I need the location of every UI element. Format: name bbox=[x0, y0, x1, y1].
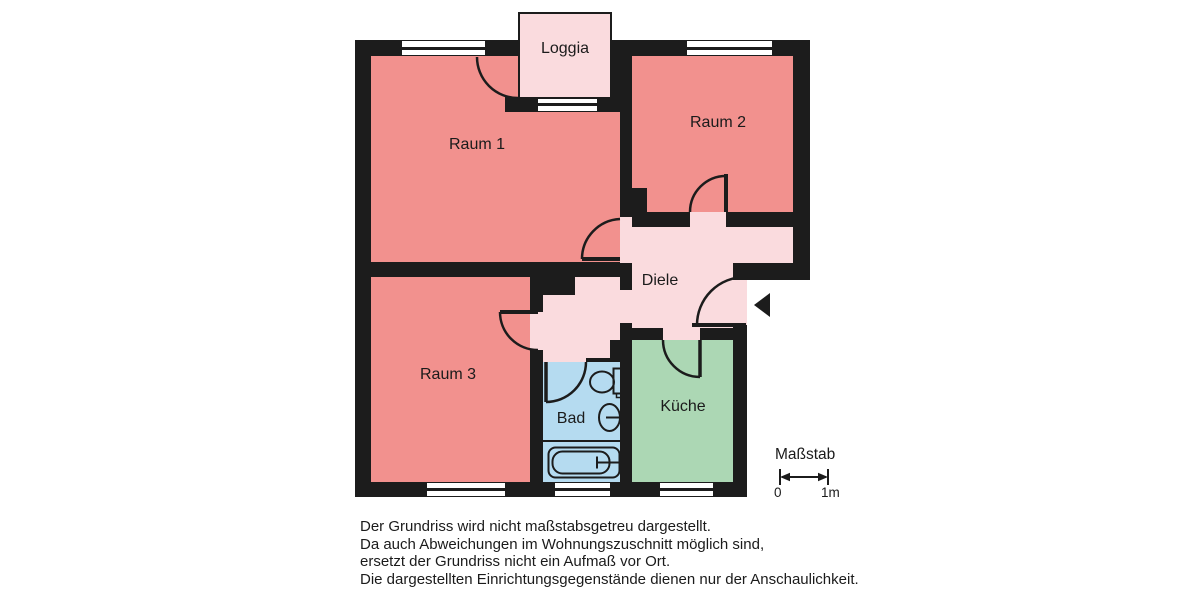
disclaimer-line: Der Grundriss wird nicht maßstabsgetreu … bbox=[360, 518, 859, 536]
wall-chimney-notch bbox=[540, 277, 575, 295]
window-symbol bbox=[427, 483, 505, 496]
window-symbol bbox=[555, 483, 610, 496]
window-symbol bbox=[660, 483, 713, 496]
room-label-diele: Diele bbox=[642, 272, 678, 290]
wall-bad-step bbox=[610, 340, 625, 358]
entrance-arrow-icon bbox=[754, 293, 770, 317]
door-gap-raum3 bbox=[530, 312, 543, 350]
diele-passage bbox=[620, 290, 632, 323]
wall-junction-block bbox=[620, 188, 647, 214]
floorplan-canvas: Loggia Raum 1 Raum 2 Raum 3 Diele Bad Kü… bbox=[0, 0, 1200, 600]
disclaimer-line: ersetzt der Grundriss nicht ein Aufmaß v… bbox=[360, 553, 859, 571]
scale-arrowhead-left bbox=[780, 473, 790, 482]
disclaimer-line: Da auch Abweichungen im Wohnungszuschnit… bbox=[360, 536, 859, 554]
scale-end-label: 1m bbox=[821, 485, 840, 500]
scale-arrow bbox=[780, 469, 828, 485]
window-symbol bbox=[402, 41, 485, 55]
door-gap-raum1 bbox=[620, 217, 632, 263]
disclaimer-text: Der Grundriss wird nicht maßstabsgetreu … bbox=[360, 518, 859, 588]
door-gap-kueche bbox=[663, 328, 700, 340]
room-label-raum1: Raum 1 bbox=[449, 136, 505, 154]
scale-title: Maßstab bbox=[775, 446, 835, 464]
room-raum2 bbox=[632, 56, 793, 212]
scale-start-label: 0 bbox=[774, 485, 782, 500]
room-label-raum3: Raum 3 bbox=[420, 366, 476, 384]
window-symbol bbox=[538, 98, 597, 111]
disclaimer-line: Die dargestellten Einrichtungsgegenständ… bbox=[360, 571, 859, 589]
room-label-loggia: Loggia bbox=[541, 40, 589, 58]
door-gap-entrance bbox=[733, 280, 747, 325]
room-label-raum2: Raum 2 bbox=[690, 114, 746, 132]
room-label-bad: Bad bbox=[557, 410, 585, 428]
window-symbol bbox=[687, 41, 772, 55]
scale-arrowhead-right bbox=[818, 473, 828, 482]
door-gap-raum2 bbox=[690, 212, 726, 227]
room-label-kueche: Küche bbox=[660, 398, 705, 416]
